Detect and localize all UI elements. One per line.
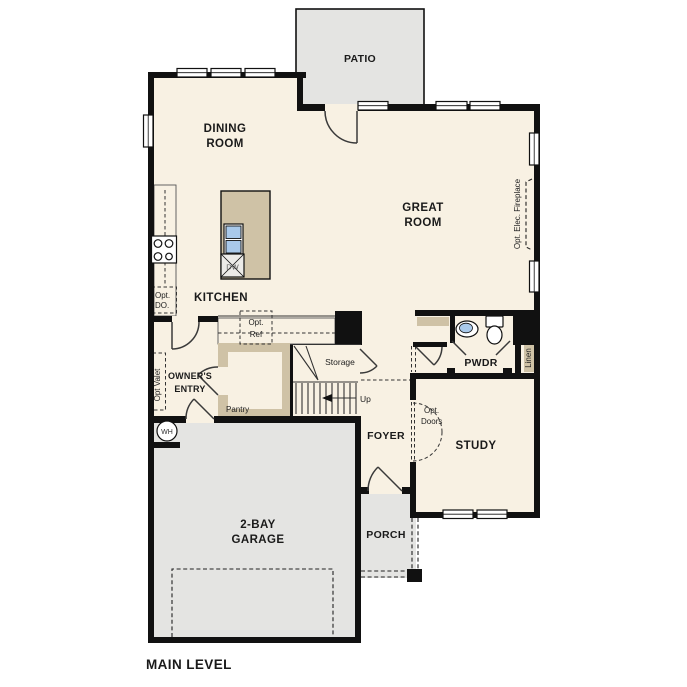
wall-linen-west bbox=[515, 343, 521, 373]
pwdr-sink-basin bbox=[460, 323, 473, 333]
label-garage-2: GARAGE bbox=[232, 534, 285, 546]
label-owners-2: ENTRY bbox=[174, 384, 205, 394]
garage-door-opening bbox=[186, 416, 214, 423]
floor-plan-svg: PATIO DINING ROOM GREAT ROOM KITCHEN OWN… bbox=[0, 0, 687, 687]
label-linen: Linen bbox=[524, 348, 533, 368]
label-dw: DW bbox=[226, 263, 239, 272]
owners-entry-opening bbox=[172, 316, 198, 322]
wall-pwdr-south-stub2 bbox=[503, 368, 512, 373]
label-great-1: GREAT bbox=[402, 202, 443, 214]
wall-west bbox=[148, 72, 154, 643]
label-storage: Storage bbox=[325, 357, 355, 367]
label-opt-do-2: DO. bbox=[155, 301, 169, 310]
wall-wh-stub bbox=[152, 442, 180, 448]
label-main-level: MAIN LEVEL bbox=[146, 657, 232, 672]
label-dining-2: ROOM bbox=[206, 138, 243, 150]
wall-chunk-linen bbox=[513, 310, 540, 345]
pantry-door-opening bbox=[214, 367, 229, 395]
label-garage-1: 2-BAY bbox=[240, 519, 275, 531]
toilet-bowl bbox=[487, 326, 502, 344]
label-opt-ref-2: Ref bbox=[250, 330, 263, 339]
burner bbox=[154, 240, 162, 248]
floor-plan: PATIO DINING ROOM GREAT ROOM KITCHEN OWN… bbox=[0, 0, 687, 687]
wall-closet-south bbox=[413, 342, 447, 347]
wall-stair-west bbox=[290, 345, 293, 416]
label-opt-fireplace: Opt. Elec. Fireplace bbox=[513, 178, 522, 249]
label-foyer: FOYER bbox=[367, 430, 405, 442]
study-opt-door-opening bbox=[410, 400, 416, 462]
label-opt-valet: Opt Valet bbox=[153, 368, 162, 402]
label-patio: PATIO bbox=[344, 53, 376, 65]
label-pwdr: PWDR bbox=[464, 357, 497, 369]
patio-door-opening bbox=[325, 104, 358, 111]
kitchen-sink-basin bbox=[226, 241, 241, 254]
label-porch: PORCH bbox=[366, 529, 405, 541]
label-kitchen: KITCHEN bbox=[194, 292, 248, 304]
wall-pwdr-south-stub1 bbox=[447, 368, 455, 373]
label-opt-doors-2: Doors bbox=[421, 417, 442, 426]
label-dining-1: DINING bbox=[204, 123, 247, 135]
pantry-floor bbox=[228, 352, 282, 409]
label-opt-do-1: Opt. bbox=[155, 291, 170, 300]
closet-shelf bbox=[417, 317, 449, 326]
burner bbox=[166, 253, 173, 260]
label-great-2: ROOM bbox=[404, 217, 441, 229]
front-door-opening bbox=[369, 487, 402, 494]
wall-garage-south bbox=[148, 637, 361, 643]
kitchen-sink-basin bbox=[226, 226, 241, 239]
label-owners-1: OWNER'S bbox=[168, 371, 212, 381]
wall-garage-east bbox=[355, 416, 361, 643]
porch-column bbox=[407, 569, 422, 582]
burner bbox=[165, 240, 173, 248]
label-opt-doors-1: Opt. bbox=[424, 406, 439, 415]
wall-study-south bbox=[410, 512, 540, 518]
label-up: Up bbox=[360, 394, 371, 404]
label-study: STUDY bbox=[456, 440, 497, 452]
wall-garage-north bbox=[148, 416, 361, 423]
label-opt-ref-1: Opt. bbox=[248, 318, 263, 327]
wall-study-north bbox=[410, 373, 540, 379]
label-wh: WH bbox=[161, 429, 173, 436]
burner bbox=[154, 253, 162, 261]
toilet-tank bbox=[486, 316, 503, 327]
wall-pwdr-closet-divider bbox=[450, 316, 455, 343]
label-pantry: Pantry bbox=[226, 405, 249, 414]
wall-chunk-stair-head bbox=[335, 311, 362, 345]
